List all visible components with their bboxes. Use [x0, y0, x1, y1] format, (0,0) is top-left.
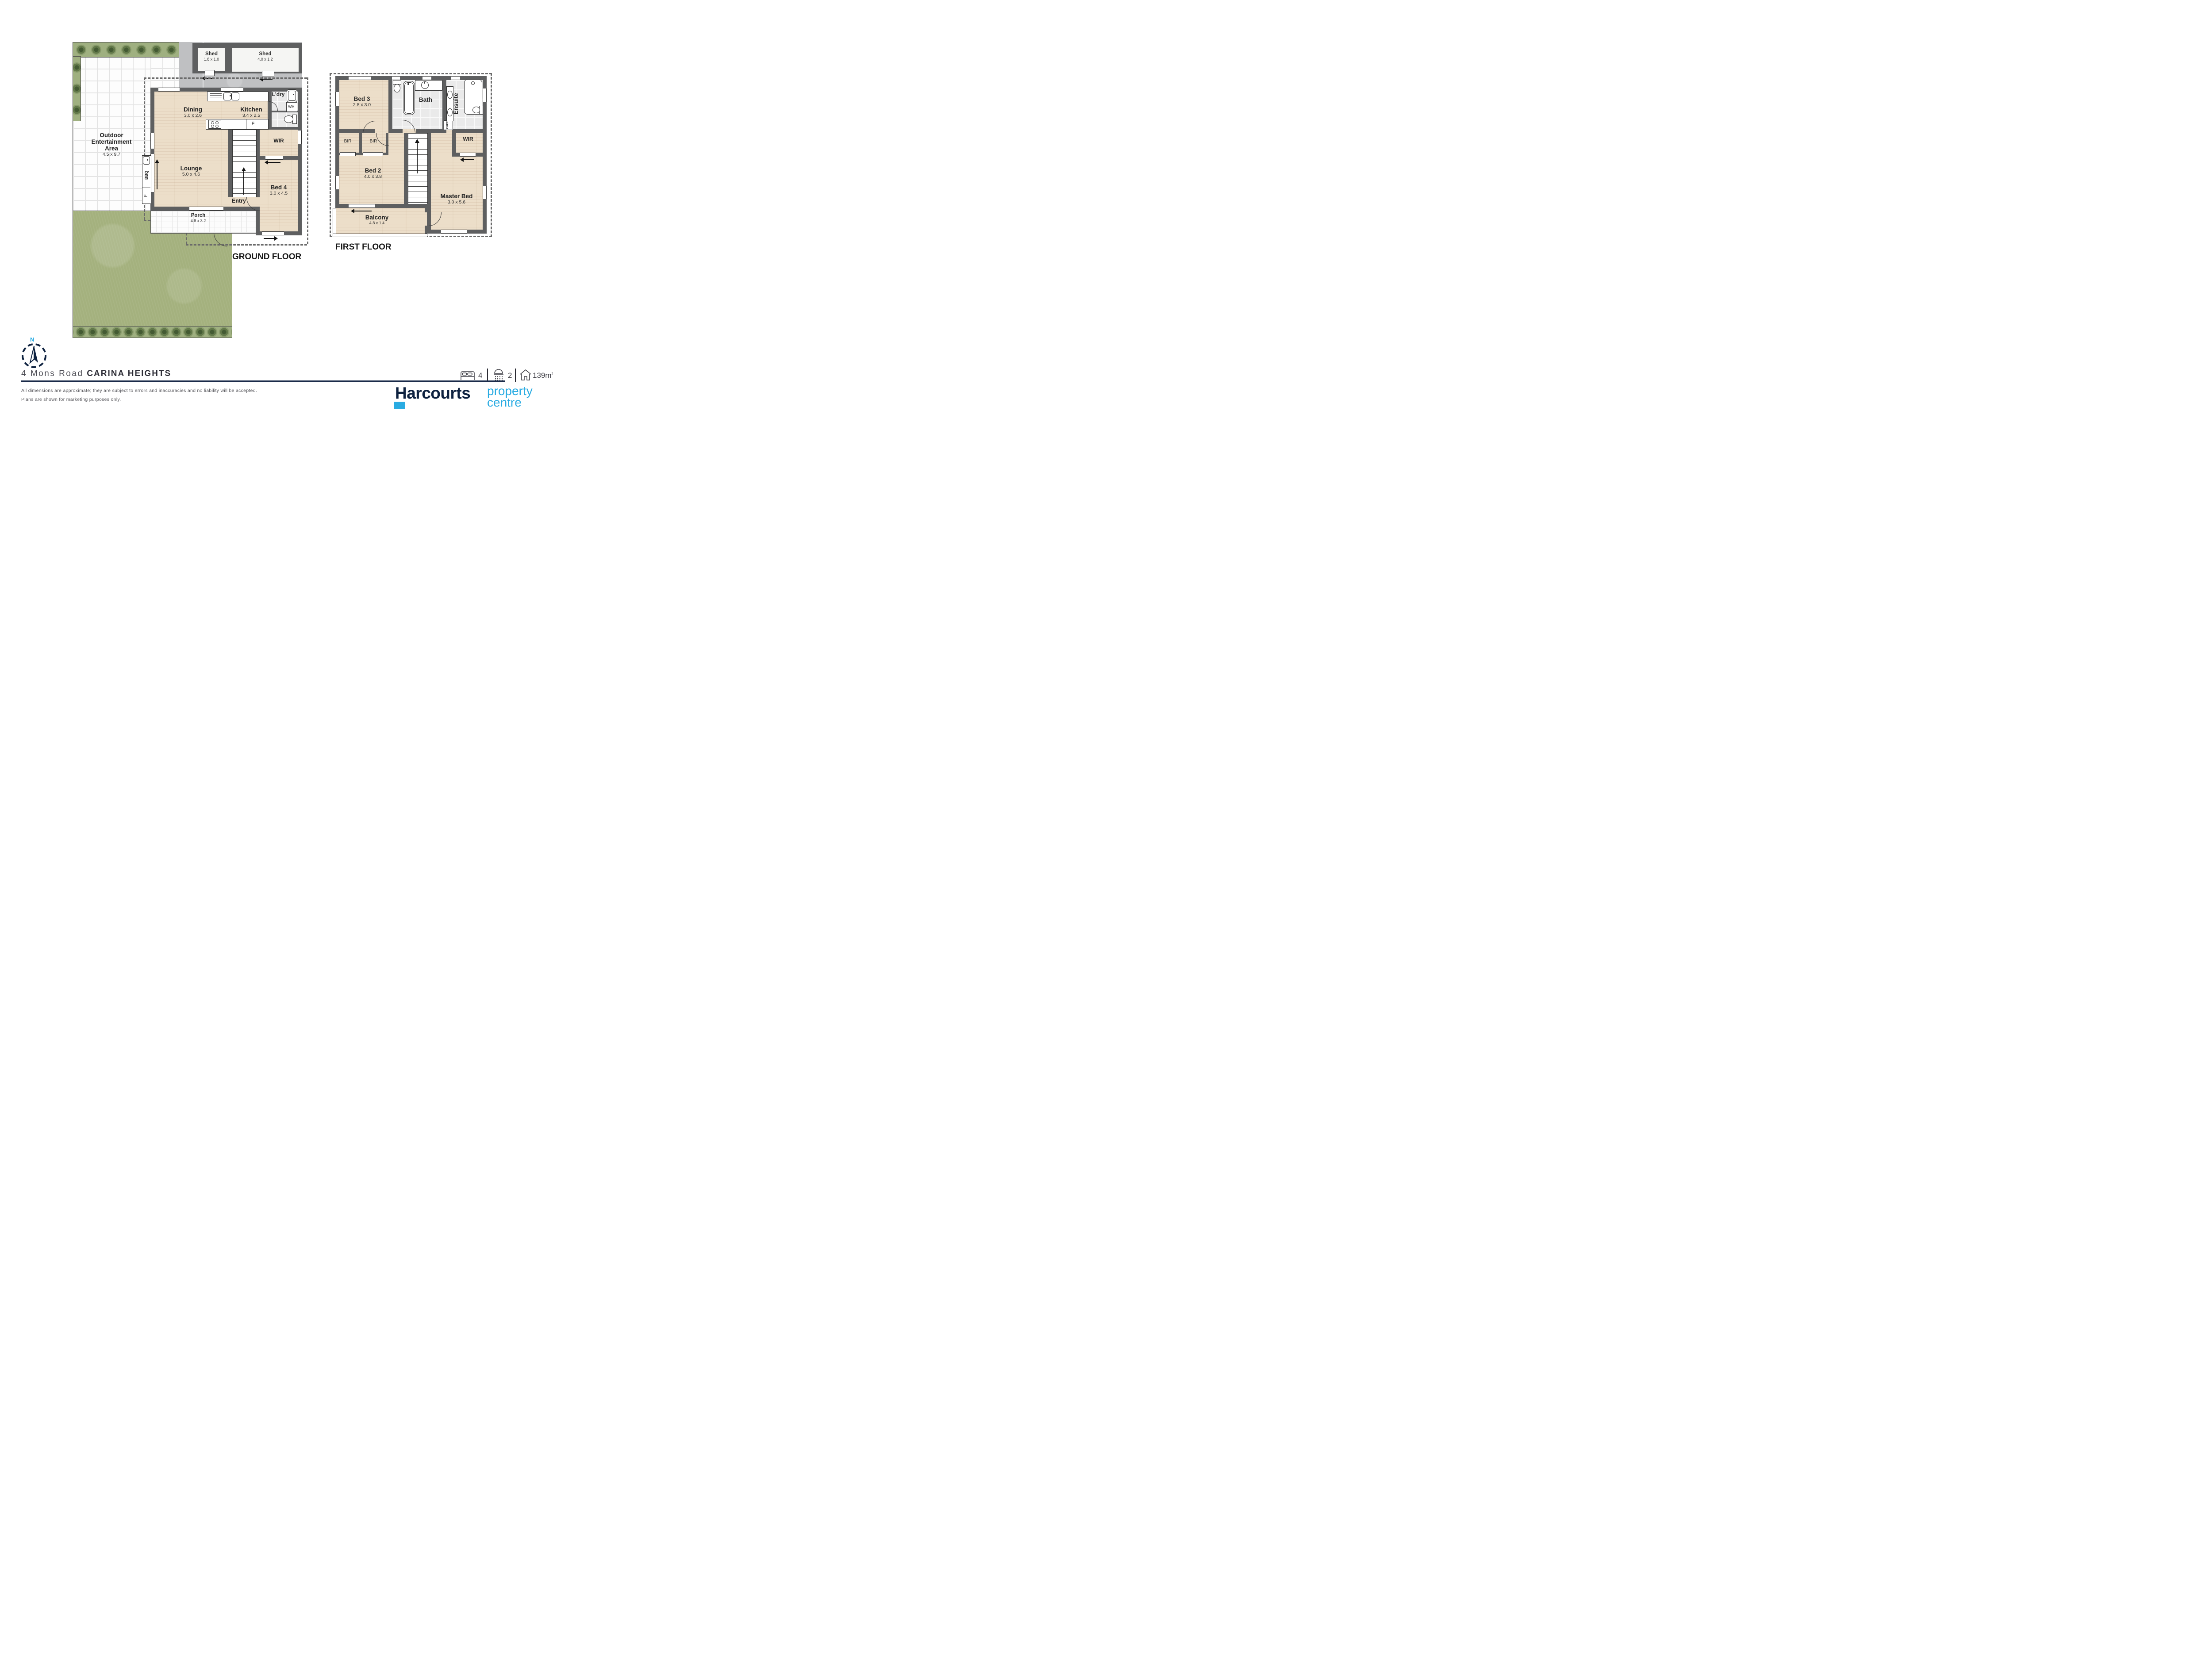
- room-name: Kitchen: [234, 106, 269, 113]
- compass: N: [20, 336, 48, 370]
- hedge-bottom: [73, 326, 232, 338]
- address: 4 Mons Road CARINA HEIGHTS: [21, 369, 171, 379]
- room-name-line: Outdoor: [85, 132, 138, 138]
- window-dining: [158, 88, 180, 92]
- outdoor-tiled-corner: [150, 56, 179, 88]
- outdoor-area-label: Outdoor Entertainment Area 4.5 x 9.7: [85, 132, 138, 157]
- ensuite-shower-head: [471, 81, 475, 85]
- wall-bed3-bath: [388, 76, 392, 133]
- disclaimer-line-1: All dimensions are approximate; they are…: [21, 388, 257, 393]
- bbq-sink-drain: [147, 159, 148, 161]
- bed-icon: [460, 369, 475, 381]
- label-text: Ensuite: [453, 93, 459, 115]
- window-ensuite-east: [483, 88, 487, 102]
- window-bed4-south: [262, 231, 284, 235]
- lounge-label: Lounge 5.0 x 4.6: [173, 165, 209, 177]
- wall-balcony-north-2: [375, 204, 425, 208]
- showers-count: 2: [508, 371, 512, 380]
- sliding-door-bed4-north: [265, 156, 283, 160]
- bench-fridge-label: F: [142, 191, 150, 200]
- bath-vanity-tap: [424, 82, 425, 84]
- bir-right-label: BIR: [365, 139, 382, 144]
- kitchen-fridge-label: F: [249, 121, 257, 127]
- fridge-cell-divider: [246, 119, 246, 129]
- bir-left-label: BIR: [339, 139, 357, 144]
- disclaimer-line-2: Plans are shown for marketing purposes o…: [21, 397, 121, 402]
- wall-hall-4: [452, 129, 483, 133]
- shower-icon: [492, 369, 505, 381]
- kitchen-label: Kitchen 3.4 x 2.5: [234, 106, 269, 119]
- wall-wc-wir: [268, 127, 302, 130]
- room-name-line: Entertainment: [85, 138, 138, 145]
- address-street: 4 Mons Road: [21, 369, 84, 378]
- floorplan-page: Shed 1.8 x 1.0 Shed 4.0 x 1.2 Outdoor En…: [0, 0, 553, 415]
- stat-divider: [515, 369, 516, 382]
- ensuite-toilet-bowl: [472, 107, 480, 113]
- room-name: Porch: [183, 213, 214, 219]
- stairs-first-up-arrow: [417, 140, 418, 173]
- shed-large-door-arrow: [260, 79, 273, 80]
- boundary-right: [307, 77, 308, 244]
- laundry-tub-inner: [288, 91, 296, 101]
- window-lounge-west: [150, 133, 154, 149]
- hedge-top: [73, 42, 180, 58]
- hedge-left: [73, 56, 81, 121]
- dining-label: Dining 3.0 x 2.6: [175, 106, 211, 119]
- window-bath-north-1: [392, 76, 400, 80]
- laundry-label: L'dry: [269, 92, 288, 97]
- brand-logo-block: [394, 402, 405, 409]
- wall-bir-divider: [359, 133, 362, 153]
- brand-logo-sub: property centre: [487, 385, 533, 408]
- window-master-south: [441, 230, 467, 234]
- sink-tap: [230, 95, 231, 96]
- room-name: Entry: [228, 198, 250, 204]
- bir-right-slider: [363, 152, 383, 156]
- room-name: Dining: [175, 106, 211, 113]
- room-name: Bath: [410, 96, 441, 103]
- sliding-door-bed4-arrow: [265, 162, 280, 163]
- laundry-tub-drain: [293, 94, 294, 95]
- stove-cooktop: [208, 120, 221, 129]
- house-area-icon: [519, 369, 532, 381]
- window-kitchen: [221, 88, 243, 92]
- bed2-label: Bed 2 4.0 x 3.8: [355, 167, 391, 180]
- boundary-bottom-east: [186, 244, 307, 246]
- shed-large-label: Shed 4.0 x 1.2: [232, 51, 299, 61]
- brand-logo-name: Harcourts: [395, 385, 470, 401]
- room-dims: 3.4 x 2.5: [234, 113, 269, 119]
- window-bed3-north: [349, 76, 371, 80]
- window-bed3-west: [335, 92, 339, 106]
- footer-rule: [21, 380, 505, 382]
- room-name: Balcony: [359, 214, 395, 221]
- boundary-top: [144, 77, 307, 79]
- room-name: WIR: [268, 138, 290, 144]
- first-floor-title: FIRST FLOOR: [335, 242, 392, 252]
- sliding-door-arrow-up: [157, 160, 157, 189]
- wir-first-label: WIR: [457, 136, 479, 142]
- brand-sub-line: centre: [487, 397, 533, 408]
- room-dims: 5.0 x 4.6: [173, 172, 209, 177]
- stove-burner: [215, 125, 219, 128]
- sliding-door-lounge-south: [189, 207, 223, 211]
- window-bath-north-2: [422, 76, 431, 80]
- room-dims: 3.0 x 5.6: [434, 200, 479, 205]
- room-dims: 4.8 x 1.4: [359, 221, 395, 225]
- area-sup: 2: [552, 371, 553, 376]
- window-balcony-slider: [349, 204, 375, 208]
- wc-toilet-bowl: [284, 115, 293, 123]
- bbq-label: BBQ: [142, 167, 150, 183]
- room-dims: 3.0 x 4.5: [263, 191, 294, 196]
- bed3-label: Bed 3 2.8 x 3.0: [344, 96, 380, 108]
- sink-bowl-right: [231, 92, 239, 100]
- room-name-line: Area: [85, 145, 138, 152]
- area-value: 139m: [533, 371, 552, 380]
- wall-bed4-west: [256, 211, 260, 235]
- shed-large-door: [262, 71, 274, 77]
- wall-balcony-master-lower: [425, 226, 429, 234]
- washing-machine-label: WM: [286, 102, 296, 111]
- sink-drainer: [210, 93, 222, 99]
- master-bed-label: Master Bed 3.0 x 5.6: [434, 193, 479, 205]
- porch-label: Porch 4.8 x 3.2: [183, 213, 214, 223]
- bath-label: Bath: [410, 96, 441, 103]
- room-dims: 4.0 x 1.2: [232, 57, 299, 61]
- wir-ground-label: WIR: [268, 138, 290, 144]
- room-dims: 4.8 x 3.2: [183, 219, 214, 223]
- label-text: F: [144, 194, 149, 197]
- room-name: Bed 4: [263, 184, 294, 191]
- compass-north-label: N: [30, 336, 34, 343]
- wall-hall-3: [416, 129, 442, 133]
- room-dims: 3.0 x 2.6: [175, 113, 211, 119]
- shed-small-door: [205, 70, 215, 76]
- stat-divider: [487, 369, 488, 382]
- room-name: Shed: [198, 51, 225, 57]
- balcony-slider-arrow: [352, 211, 372, 211]
- sink-bowl-left: [223, 92, 231, 100]
- balcony-label: Balcony 4.8 x 1.4: [359, 214, 395, 225]
- room-dims: 4.0 x 3.8: [355, 174, 391, 180]
- beds-count: 4: [478, 371, 482, 380]
- wir-f-slider-arrow: [461, 159, 474, 160]
- bathtub-tap: [407, 83, 409, 85]
- room-name: Bed 2: [355, 167, 391, 174]
- stairs-ground: [232, 130, 257, 197]
- wall-stairs-west: [228, 129, 232, 197]
- room-name: WIR: [457, 136, 479, 142]
- room-name: L'dry: [269, 92, 288, 97]
- stove-burner: [215, 121, 219, 124]
- wall-wir-f-west: [452, 133, 456, 153]
- entry-label: Entry: [228, 198, 250, 204]
- window-bed4-arrow: [264, 238, 277, 239]
- window-ensuite-north: [451, 76, 460, 80]
- ground-floor-title: GROUND FLOOR: [232, 252, 301, 262]
- shed-small-label: Shed 1.8 x 1.0: [198, 51, 225, 61]
- label-text: WM: [288, 105, 294, 109]
- bir-left-slider: [340, 152, 356, 156]
- room-dims: 1.8 x 1.0: [198, 57, 225, 61]
- wall-stairs-f-west: [404, 133, 408, 204]
- floor-area: 139m2: [533, 371, 553, 380]
- stove-burner: [211, 125, 214, 128]
- address-suburb: CARINA HEIGHTS: [87, 369, 171, 378]
- room-dims: 4.5 x 9.7: [85, 152, 138, 157]
- balcony-rail-south: [333, 234, 427, 237]
- ensuite-label: Ensuite: [449, 85, 462, 122]
- wall-east: [298, 88, 302, 235]
- stairs-ground-up-arrow: [243, 168, 244, 195]
- room-name: Shed: [232, 51, 299, 57]
- window-master-east: [483, 186, 487, 199]
- label-text: BBQ: [144, 171, 149, 180]
- window-bed2-west: [335, 176, 339, 189]
- stairs-first: [408, 133, 428, 204]
- stove-burner: [211, 121, 214, 124]
- room-dims: 2.8 x 3.0: [344, 103, 380, 108]
- wir-f-slider: [460, 153, 476, 157]
- bath-vanity: [415, 80, 442, 91]
- bbq-bench-divider: [142, 188, 150, 188]
- balcony-rail-west: [333, 208, 336, 237]
- room-name: Lounge: [173, 165, 209, 172]
- bed4-label: Bed 4 3.0 x 4.5: [263, 184, 294, 196]
- window-wir-east: [298, 131, 302, 144]
- room-name: Bed 3: [344, 96, 380, 102]
- room-name: Master Bed: [434, 193, 479, 200]
- wall-balcony-north-1: [335, 204, 349, 208]
- bath-toilet-bowl: [394, 84, 400, 92]
- bbq-sink: [143, 156, 150, 165]
- wall-balcony-master: [425, 204, 429, 212]
